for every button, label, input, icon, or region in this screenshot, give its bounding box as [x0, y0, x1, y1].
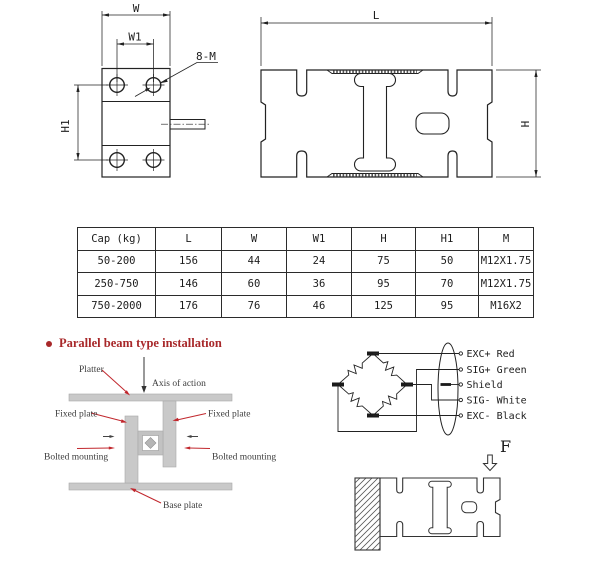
cell-h: 125: [352, 295, 416, 318]
col-header-h: H: [352, 228, 416, 251]
wire-label-shield: Shield: [467, 380, 503, 391]
wire-label-sig-minus: SIG- White: [467, 396, 527, 407]
table-row: 750-2000 176 76 46 125 95 M16X2: [78, 295, 534, 318]
leader-platter: [102, 370, 130, 396]
base-plate: [69, 483, 232, 490]
force-diagram: F: [355, 437, 511, 563]
cell-h: 75: [352, 250, 416, 273]
dim-label-h: H: [519, 121, 532, 128]
bolt-arrow-left: [103, 435, 115, 438]
fixed-plate-left: [125, 416, 138, 483]
cell-w1: 36: [287, 273, 352, 296]
fixed-plate-right: [163, 401, 176, 467]
force-label: F: [500, 437, 511, 456]
installation-section-title: Parallel beam type installation: [46, 336, 222, 351]
gauge-cutout: [355, 74, 396, 172]
thread-label: 8-M: [196, 50, 216, 63]
shield-wire: [441, 383, 452, 386]
cell-h: 95: [352, 273, 416, 296]
table-header-row: Cap (kg) L W W1 H H1 M: [78, 228, 534, 251]
cable-cross-section: [438, 343, 458, 435]
bullet-icon: [46, 341, 52, 347]
datasheet-page: W W1 H1 8-M: [0, 0, 600, 563]
cell-w: 44: [222, 250, 287, 273]
axis-arrow: [141, 357, 146, 393]
label-bolted-mounting-right: Bolted mounting: [212, 453, 276, 463]
dimension-l: [261, 17, 492, 66]
dim-label-w: W: [133, 2, 140, 15]
cell-cap: 50-200: [78, 250, 156, 273]
cell-w1: 46: [287, 295, 352, 318]
wire-label-exc-plus: EXC+ Red: [467, 349, 515, 360]
table-row: 50-200 156 44 24 75 50 M12X1.75: [78, 250, 534, 273]
cell-w: 76: [222, 295, 287, 318]
mini-gauge-cutout: [429, 481, 452, 533]
col-header-w1: W1: [287, 228, 352, 251]
label-axis-of-action: Axis of action: [152, 378, 206, 389]
col-header-l: L: [156, 228, 222, 251]
mini-side-slot: [462, 502, 477, 513]
cell-cap: 750-2000: [78, 295, 156, 318]
bridge-resistors: [336, 351, 410, 419]
label-bolted-mounting-left: Bolted mounting: [44, 453, 108, 463]
cell-l: 176: [156, 295, 222, 318]
cell-w: 60: [222, 273, 287, 296]
label-platter: Platter: [79, 365, 105, 375]
mounting-holes: [106, 74, 165, 171]
cell-m: M16X2: [479, 295, 534, 318]
mini-load-cell: [380, 478, 500, 537]
cell-h1: 95: [416, 295, 479, 318]
label-base-plate: Base plate: [163, 501, 202, 511]
dim-label-w1: W1: [128, 31, 141, 44]
side-slot: [416, 113, 449, 134]
platter-plate: [69, 394, 232, 401]
cell-m: M12X1.75: [479, 250, 534, 273]
installation-diagram: Platter Axis of action Fixed plate Fixed…: [44, 357, 276, 511]
wire-label-exc-minus: EXC- Black: [467, 411, 527, 422]
end-view-drawing: W W1 H1 8-M: [59, 2, 218, 177]
installation-title-text: Parallel beam type installation: [59, 336, 222, 351]
force-arrow: [484, 455, 497, 471]
cell-h1: 70: [416, 273, 479, 296]
col-header-m: M: [479, 228, 534, 251]
leader-fixed-right: [173, 414, 207, 422]
side-view-drawing: L H: [261, 9, 541, 177]
cell-cap: 250-750: [78, 273, 156, 296]
label-fixed-plate-right: Fixed plate: [208, 410, 250, 420]
leader-bolted-left: [77, 447, 115, 450]
cell-w1: 24: [287, 250, 352, 273]
cell-l: 146: [156, 273, 222, 296]
col-header-w: W: [222, 228, 287, 251]
bridge-terminals: [332, 352, 413, 418]
thread-callout-leader: [135, 63, 218, 97]
wall-hatch: [356, 459, 380, 563]
dimension-h1: [74, 85, 108, 160]
wire-label-sig-plus: SIG+ Green: [467, 365, 527, 376]
cell-h1: 50: [416, 250, 479, 273]
cable-exit: [161, 120, 211, 130]
bolt-arrow-right: [187, 435, 199, 438]
col-header-h1: H1: [416, 228, 479, 251]
col-header-cap: Cap (kg): [78, 228, 156, 251]
wiring-diagram: EXC+ Red SIG+ Green Shield SIG- White EX…: [332, 343, 527, 435]
cell-m: M12X1.75: [479, 273, 534, 296]
dim-label-h1: H1: [59, 119, 72, 132]
dimension-w1: [117, 39, 154, 82]
dimension-spec-table: Cap (kg) L W W1 H H1 M 50-200 156 44 24 …: [77, 227, 534, 318]
table-row: 250-750 146 60 36 95 70 M12X1.75: [78, 273, 534, 296]
cell-l: 156: [156, 250, 222, 273]
wire-pins: [459, 352, 462, 417]
dim-label-l: L: [373, 9, 380, 22]
leader-bolted-right: [184, 447, 210, 450]
label-fixed-plate-left: Fixed plate: [55, 410, 97, 420]
